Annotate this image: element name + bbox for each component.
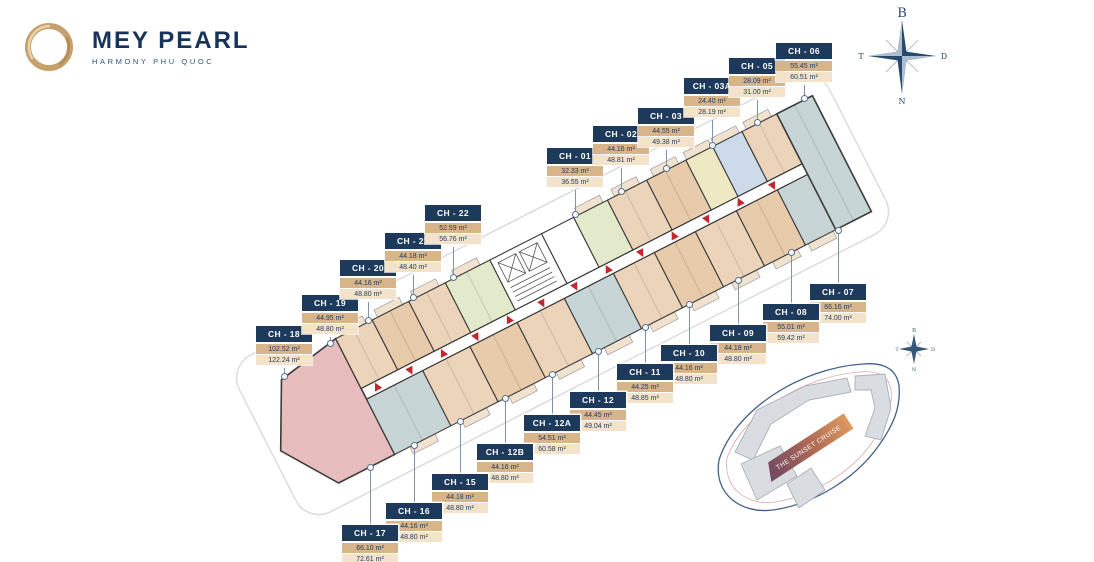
leader-line (505, 398, 506, 444)
leader-node (410, 294, 417, 301)
leader-node (735, 277, 742, 284)
pearl-ring-icon (20, 18, 78, 76)
leader-node (367, 464, 374, 471)
floorplan-page: MEY PEARL HARMONY PHU QUOC B T D N (0, 0, 1094, 562)
unit-area-net: 44.25 m² (617, 382, 673, 392)
unit-area-gross: 56.76 m² (425, 234, 481, 244)
unit-area-gross: 31.00 m² (729, 87, 785, 97)
leader-node (365, 317, 372, 324)
minimap-compass-north: B (912, 328, 916, 334)
unit-area-gross: 59.42 m² (763, 333, 819, 343)
unit-area-net: 54.51 m² (524, 433, 580, 443)
unit-area-net: 66.10 m² (342, 543, 398, 553)
leader-line (552, 374, 553, 415)
leader-node (642, 324, 649, 331)
unit-id: CH - 06 (776, 43, 832, 59)
leader-node (327, 340, 334, 347)
unit-label: CH - 0944.18 m²48.80 m² (710, 325, 766, 364)
unit-id: CH - 12B (477, 444, 533, 460)
brand-logo: MEY PEARL HARMONY PHU QUOC (20, 18, 250, 76)
unit-area-gross: 48.80 m² (302, 324, 358, 334)
leader-node (450, 274, 457, 281)
minimap-compass-south: N (912, 367, 917, 372)
unit-label: CH - 1944.95 m²48.80 m² (302, 295, 358, 334)
leader-line (598, 351, 599, 392)
unit-area-gross: 49.38 m² (638, 137, 694, 147)
unit-area-net: 24.40 m² (684, 96, 740, 106)
leader-node (709, 142, 716, 149)
leader-node (595, 348, 602, 355)
unit-area-gross: 28.19 m² (684, 107, 740, 117)
unit-id: CH - 17 (342, 525, 398, 541)
site-minimap: THE SUNSET CRUISE (705, 348, 915, 526)
leader-node (835, 227, 842, 234)
unit-area-net: 44.95 m² (302, 313, 358, 323)
leader-line (414, 445, 415, 503)
minimap-compass: B T D N (895, 326, 935, 372)
leader-node (281, 373, 288, 380)
unit-area-net: 55.45 m² (776, 61, 832, 71)
unit-area-net: 44.16 m² (477, 462, 533, 472)
leader-line (838, 230, 839, 284)
leader-node (549, 371, 556, 378)
unit-area-gross: 48.40 m² (385, 262, 441, 272)
leader-node (457, 418, 464, 425)
leader-node (502, 395, 509, 402)
unit-area-gross: 60.51 m² (776, 72, 832, 82)
leader-node (686, 301, 693, 308)
leader-line (738, 280, 739, 325)
minimap-compass-star (899, 334, 929, 364)
unit-area-gross: 72.61 m² (342, 554, 398, 562)
brand-subtitle: HARMONY PHU QUOC (92, 57, 250, 66)
brand-title: MEY PEARL (92, 29, 250, 53)
unit-id: CH - 12A (524, 415, 580, 431)
leader-line (791, 252, 792, 304)
minimap-compass-west: T (895, 347, 899, 353)
unit-label: CH - 1766.10 m²72.61 m² (342, 525, 398, 562)
unit-area-net: 55.01 m² (763, 322, 819, 332)
unit-id: CH - 11 (617, 364, 673, 380)
unit-area-net: 102.52 m² (256, 344, 312, 354)
leader-line (370, 467, 371, 525)
unit-id: CH - 16 (386, 503, 442, 519)
leader-node (572, 211, 579, 218)
unit-area-net: 32.33 m² (547, 166, 603, 176)
unit-id: CH - 15 (432, 474, 488, 490)
unit-area-gross: 48.80 m² (710, 354, 766, 364)
unit-id: CH - 22 (425, 205, 481, 221)
unit-id: CH - 10 (661, 345, 717, 361)
unit-area-gross: 48.81 m² (593, 155, 649, 165)
minimap-compass-east: D (931, 347, 935, 353)
unit-label: CH - 0855.01 m²59.42 m² (763, 304, 819, 343)
unit-label: CH - 0655.45 m²60.51 m² (776, 43, 832, 82)
unit-area-gross: 48.80 m² (340, 289, 396, 299)
unit-id: CH - 12 (570, 392, 626, 408)
leader-line (453, 247, 454, 277)
unit-id: CH - 08 (763, 304, 819, 320)
leader-line (689, 304, 690, 345)
unit-area-gross: 122.24 m² (256, 355, 312, 365)
leader-node (801, 95, 808, 102)
unit-labels-layer: CH - 0132.33 m²36.55 m²CH - 0244.16 m²48… (0, 0, 1094, 562)
unit-label: CH - 2252.59 m²56.76 m² (425, 205, 481, 244)
unit-id: CH - 07 (810, 284, 866, 300)
unit-area-net: 44.55 m² (638, 126, 694, 136)
leader-node (663, 165, 670, 172)
unit-area-net: 44.18 m² (710, 343, 766, 353)
leader-node (754, 119, 761, 126)
unit-area-net: 44.16 m² (340, 278, 396, 288)
unit-area-gross: 36.55 m² (547, 177, 603, 187)
unit-area-net: 52.59 m² (425, 223, 481, 233)
unit-area-net: 44.18 m² (385, 251, 441, 261)
leader-line (645, 327, 646, 364)
leader-node (411, 442, 418, 449)
leader-line (460, 421, 461, 474)
unit-id: CH - 09 (710, 325, 766, 341)
leader-node (618, 188, 625, 195)
leader-node (788, 249, 795, 256)
unit-area-net: 44.18 m² (432, 492, 488, 502)
